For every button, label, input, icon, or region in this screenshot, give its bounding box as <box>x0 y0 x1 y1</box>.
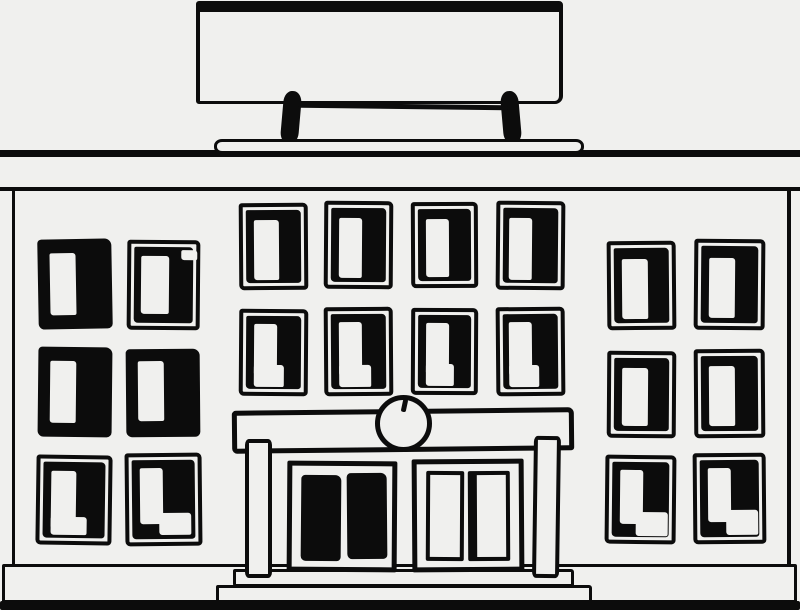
window-center-r2-c2 <box>324 307 394 396</box>
building-sketch <box>0 0 800 610</box>
door-panel-right-b <box>468 471 510 561</box>
window-pane <box>49 253 76 315</box>
window-center-r2-c1 <box>239 309 309 396</box>
window-pane <box>708 468 731 522</box>
entrance-step-upper <box>233 569 574 587</box>
window-left-r1-c2 <box>127 240 201 331</box>
window-right-r2-c2 <box>694 349 766 438</box>
roof-sign-post-left <box>280 90 303 144</box>
window-pane <box>426 219 449 277</box>
door-panel-left-b <box>347 473 388 559</box>
door-panel-left-a <box>301 475 342 561</box>
window-pane <box>636 512 668 536</box>
window-center-r1-c3 <box>411 202 478 288</box>
window-center-r2-c3 <box>411 308 478 395</box>
entrance-step-lower <box>216 585 592 603</box>
window-pane <box>339 365 371 387</box>
window-center-r1-c4 <box>496 201 566 291</box>
window-left-r1-c1 <box>37 238 113 329</box>
window-pane <box>426 364 454 386</box>
entrance-pillar-right <box>532 436 561 578</box>
roof-platform <box>214 139 584 154</box>
window-pane <box>622 368 648 426</box>
window-pane <box>254 220 279 280</box>
window-left-r3-c2 <box>125 453 203 547</box>
entrance-pillar-left <box>245 439 272 578</box>
window-pane <box>509 365 539 387</box>
window-pane <box>254 365 284 387</box>
window-right-r3-c1 <box>605 455 677 545</box>
window-left-r2-c2 <box>126 349 201 438</box>
window-pane <box>51 517 87 536</box>
window-pane <box>138 361 165 421</box>
window-right-r3-c2 <box>693 453 767 545</box>
window-pane <box>159 513 191 535</box>
window-right-r2-c1 <box>607 351 677 438</box>
window-pane <box>509 218 533 280</box>
window-pane <box>181 250 197 260</box>
window-left-r3-c1 <box>35 454 112 545</box>
window-center-r1-c1 <box>239 203 309 290</box>
roof-sign-board <box>196 1 563 104</box>
window-pane <box>622 259 649 319</box>
window-right-r1-c1 <box>607 241 677 331</box>
window-center-r1-c2 <box>324 201 394 289</box>
roof-band <box>0 150 800 191</box>
window-pane <box>141 256 170 314</box>
window-pane <box>709 258 736 318</box>
window-pane <box>339 218 362 278</box>
door-panel-right-a <box>426 471 464 561</box>
window-left-r2-c1 <box>38 347 113 438</box>
window-pane <box>709 366 735 426</box>
window-center-r2-c4 <box>496 307 566 397</box>
window-pane <box>50 361 77 423</box>
window-right-r1-c2 <box>694 239 766 331</box>
